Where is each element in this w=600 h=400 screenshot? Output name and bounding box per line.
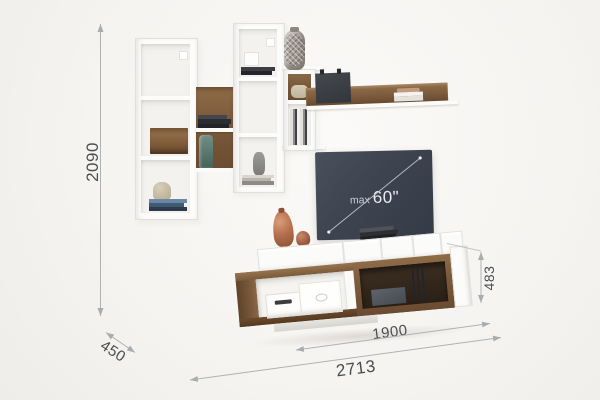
dimension-lines xyxy=(0,0,600,400)
product-render-wall-unit: max60" xyxy=(0,0,600,400)
